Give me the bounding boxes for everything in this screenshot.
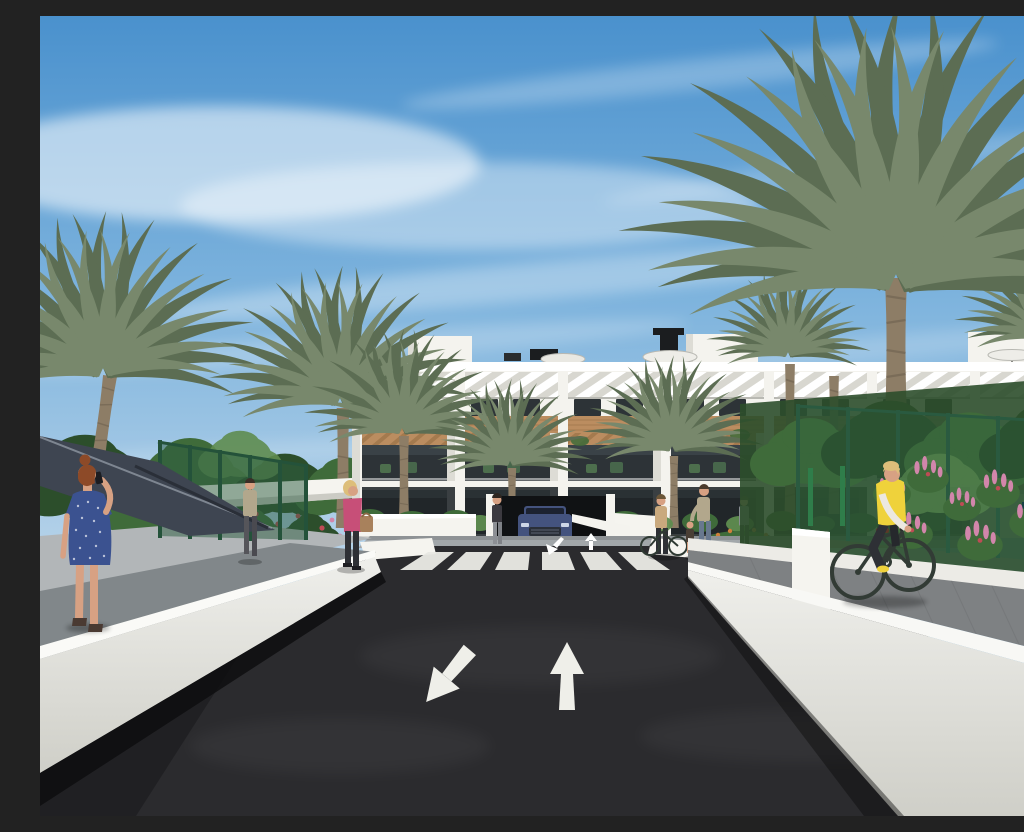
architectural-render [40, 16, 1024, 816]
woman-by-ramp [492, 493, 502, 544]
